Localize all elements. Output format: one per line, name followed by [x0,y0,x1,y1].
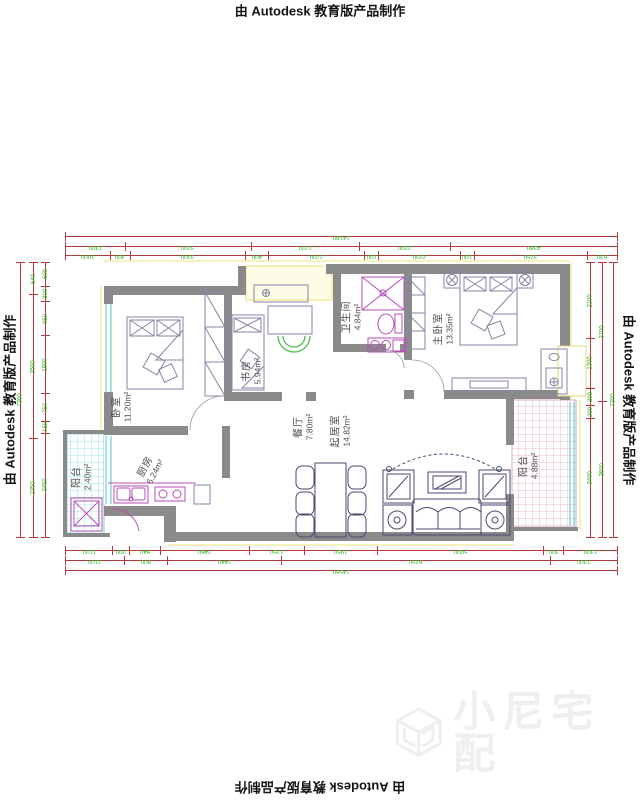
dim-segment: 100 [460,251,474,260]
dim-segment: 300 [41,286,50,301]
dim-label: 1000 [81,253,94,259]
dim-segment: 630 [587,251,618,260]
room-label-balcony-right: 阳台 4.88m² [519,453,540,479]
dim-segment: 640 [29,262,38,294]
dim-segment: 2350 [29,438,38,538]
dim-label: 3500 [31,360,37,373]
dim-segment: 3600 [598,401,607,538]
dim-label: 150 [43,422,49,432]
dim-chain-top-row2: 13003200270022004380 [65,242,618,251]
dim-segment: 300 [586,388,595,405]
dim-label: 3250 [524,253,537,259]
dim-segment: 750 [41,393,50,421]
dim-label: 2200 [398,244,411,250]
dim-label: 7300 [18,393,24,406]
dim-label: 100 [367,253,377,259]
room-label-bedroom: 卧室 11.20m² [112,392,133,423]
dim-segment: 1100 [65,546,112,555]
dim-label: 1300 [89,244,102,250]
room-label-study: 书房 5.94m² [242,358,263,384]
dim-segment: 6250 [281,556,550,565]
dim-segment: 3200 [125,242,251,251]
room-label-bathroom: 卫生间 4.84m² [342,301,363,334]
dim-segment: 1300 [586,338,595,388]
dim-segment: 7300 [16,262,25,538]
dim-chain-top-total: 14180 [65,232,618,241]
floorplan-canvas: 由 Autodesk 教育版产品制作 由 Autodesk 教育版产品制作 由 … [0,0,640,800]
dim-label: 2200 [413,253,426,259]
dim-segment: 5000 [377,546,543,555]
dim-chain-bottom-total: 14580 [65,566,618,575]
dim-segment: 2460 [160,546,249,555]
dim-label: 630 [597,253,607,259]
dim-segment: 4380 [450,242,618,251]
dim-label: 640 [31,274,37,284]
dim-chain-right-outer: 7300 [609,262,618,538]
dim-label: 1300 [588,357,594,370]
brand-watermark: 小尼宅配 [392,691,640,775]
dim-chain-right-inner: 210013003002003400 [586,262,595,538]
dim-label: 1800 [43,358,49,371]
bedroom-furniture [127,292,225,396]
dim-label: 750 [43,403,49,413]
dim-label: 300 [115,253,125,259]
dim-label: 200 [588,407,594,417]
dim-label: 1100 [88,558,101,564]
dim-label: 14180 [333,234,350,240]
dim-label: 5000 [454,548,467,554]
dim-label: 2700 [299,244,312,250]
dim-label: 2700 [310,253,323,259]
dim-segment: 1000 [65,251,110,260]
dim-chain-bottom-middle: 1100800244062501300 [65,556,618,565]
dim-chain-left-middle: 64035002350 [29,262,38,538]
dim-segment: 1350 [249,546,304,555]
dim-label: 3450 [43,479,49,492]
room-label-balcony-left: 阳台 2.40m² [72,464,93,490]
room-label-master-bedroom: 主卧室 13.35m² [434,313,455,346]
dim-segment: 1300 [563,546,618,555]
dim-segment: 2700 [268,251,364,260]
dim-label: 6250 [409,558,422,564]
dim-label: 2350 [31,481,37,494]
dim-segment: 100 [364,251,378,260]
living-room-furniture [383,454,510,535]
dim-segment: 2100 [586,262,595,338]
dim-segment: 3400 [586,418,595,538]
dim-chain-left-outer: 7300 [16,262,25,538]
dim-segment: 3700 [598,262,607,401]
dim-segment: 1950 [304,546,377,555]
dim-label: 2100 [588,294,594,307]
dim-segment: 2440 [167,556,281,565]
dim-label: 600 [43,269,49,279]
dim-label: 2440 [218,558,231,564]
dim-segment: 300 [110,251,130,260]
dim-segment: 200 [586,405,595,419]
dim-segment: 2200 [378,251,459,260]
dim-segment: 1300 [65,242,125,251]
dim-segment: 300 [543,546,563,555]
dim-segment: 3250 [474,251,587,260]
dim-label: 2460 [198,548,211,554]
dim-chain-left-inner: 60030095018007501503450 [41,262,50,538]
dim-segment: 3300 [130,251,245,260]
dim-label: 950 [43,314,49,324]
dim-segment: 600 [41,262,50,286]
dining-furniture [296,463,366,537]
brand-name: 小尼宅配 [453,691,640,775]
dim-label: 3600 [600,463,606,476]
dim-label: 1950 [334,548,347,554]
dim-segment: 2700 [251,242,359,251]
dim-label: 7300 [611,393,617,406]
dim-segment: 400 [245,251,268,260]
dim-chain-right-middle: 37003600 [598,262,607,538]
dim-segment: 14580 [65,566,618,575]
floorplan-drawing [0,0,640,800]
dim-segment: 640 [129,546,159,555]
dim-segment: 3500 [29,294,38,438]
dim-label: 1100 [83,548,96,554]
dim-label: 4380 [527,244,540,250]
dim-segment: 14180 [65,232,618,241]
dim-label: 1300 [577,558,590,564]
dim-label: 300 [549,548,559,554]
brand-cube-logo [392,704,445,762]
dim-segment: 3450 [41,433,50,538]
dim-label: 300 [588,392,594,402]
dim-label: 1300 [584,548,597,554]
dim-label: 3700 [600,325,606,338]
dim-label: 400 [252,253,262,259]
dim-segment: 7300 [609,262,618,538]
dim-segment: 1800 [41,335,50,393]
dim-label: 3300 [181,253,194,259]
room-label-living-room: 起居室 14.82m² [331,415,352,448]
dim-label: 1350 [270,548,283,554]
dim-segment: 1100 [65,556,124,565]
dim-chain-top-row3: 10003003300400270010022001003250630 [65,251,618,260]
bathroom-fixtures [362,277,406,352]
dim-segment: 2200 [359,242,450,251]
dim-segment: 200 [112,546,129,555]
dim-label: 3200 [181,244,194,250]
dim-label: 3400 [588,471,594,484]
room-label-dining-room: 餐厅 7.80m² [294,414,315,440]
dim-segment: 1300 [550,556,618,565]
dim-label: 300 [43,289,49,299]
dim-label: 14580 [333,568,350,574]
dim-segment: 800 [124,556,168,565]
dim-label: 200 [116,548,126,554]
master-bedroom-furniture [407,271,567,394]
dim-segment: 150 [41,421,50,432]
dim-label: 640 [140,548,150,554]
dim-label: 100 [462,253,472,259]
dim-label: 800 [141,558,151,564]
dim-segment: 950 [41,301,50,335]
dim-chain-bottom-inner: 110020064024601350195050003001300 [65,546,618,555]
